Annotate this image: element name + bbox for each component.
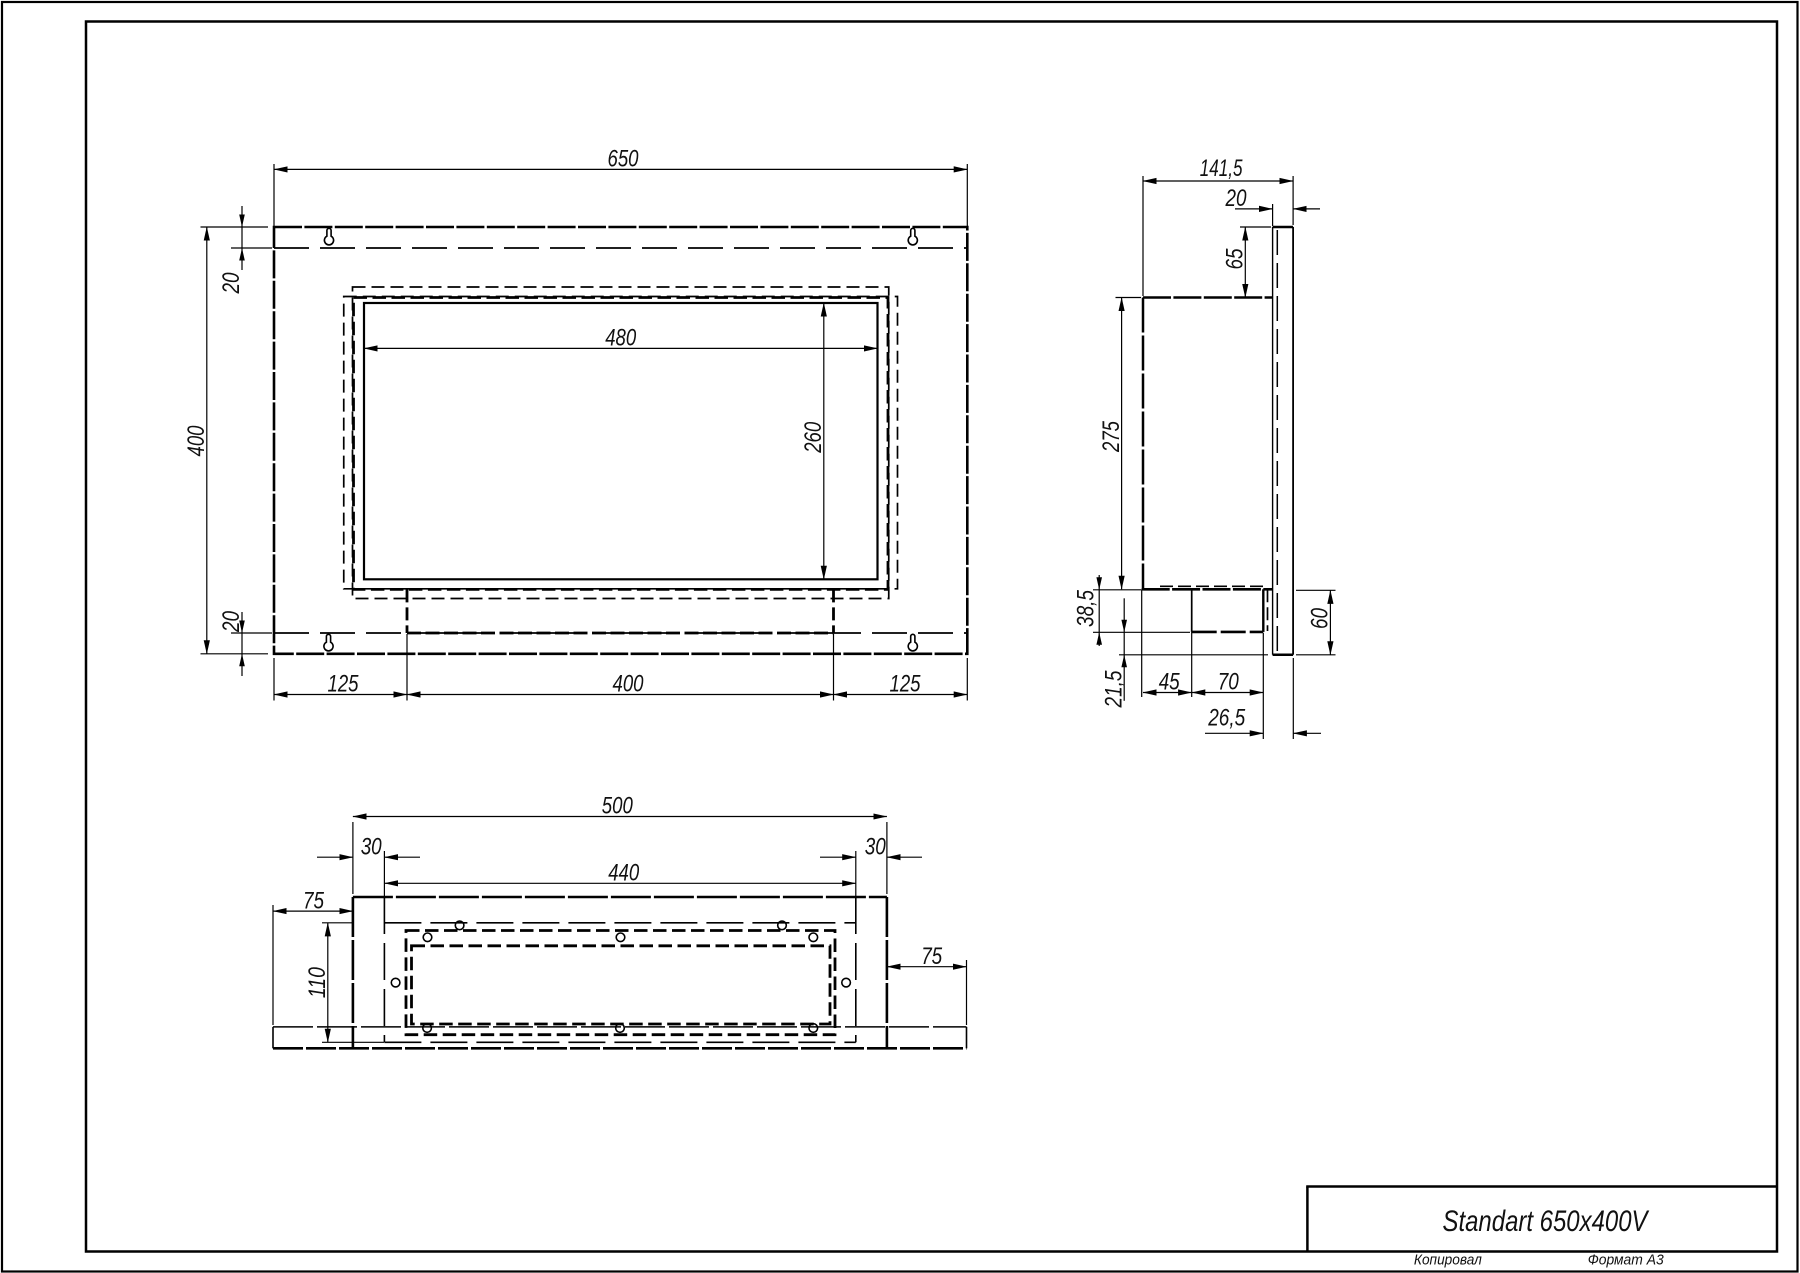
svg-text:30: 30 bbox=[361, 833, 383, 860]
svg-text:20: 20 bbox=[1225, 185, 1247, 212]
svg-text:400: 400 bbox=[183, 425, 210, 457]
svg-text:125: 125 bbox=[328, 671, 360, 698]
svg-text:65: 65 bbox=[1222, 248, 1249, 270]
svg-text:400: 400 bbox=[613, 671, 645, 698]
svg-text:30: 30 bbox=[865, 833, 887, 860]
svg-text:110: 110 bbox=[304, 967, 331, 999]
svg-text:125: 125 bbox=[890, 671, 922, 698]
svg-text:20: 20 bbox=[218, 610, 245, 632]
svg-text:70: 70 bbox=[1218, 669, 1240, 696]
svg-text:Формат А3: Формат А3 bbox=[1588, 1252, 1665, 1269]
svg-text:45: 45 bbox=[1159, 669, 1181, 696]
svg-text:Standart 650x400V: Standart 650x400V bbox=[1443, 1205, 1650, 1238]
svg-text:38,5: 38,5 bbox=[1072, 589, 1099, 627]
svg-text:60: 60 bbox=[1307, 607, 1334, 629]
svg-text:275: 275 bbox=[1098, 420, 1125, 452]
svg-text:260: 260 bbox=[800, 421, 827, 453]
svg-text:75: 75 bbox=[303, 887, 325, 914]
svg-text:440: 440 bbox=[608, 860, 640, 887]
svg-text:20: 20 bbox=[218, 272, 245, 294]
svg-text:480: 480 bbox=[605, 325, 637, 352]
svg-text:650: 650 bbox=[608, 146, 640, 173]
svg-text:75: 75 bbox=[921, 943, 943, 970]
svg-text:26,5: 26,5 bbox=[1207, 704, 1245, 731]
svg-text:500: 500 bbox=[602, 793, 634, 820]
svg-text:141,5: 141,5 bbox=[1200, 155, 1243, 182]
svg-text:Копировал: Копировал bbox=[1414, 1252, 1482, 1269]
svg-text:21,5: 21,5 bbox=[1100, 670, 1127, 708]
